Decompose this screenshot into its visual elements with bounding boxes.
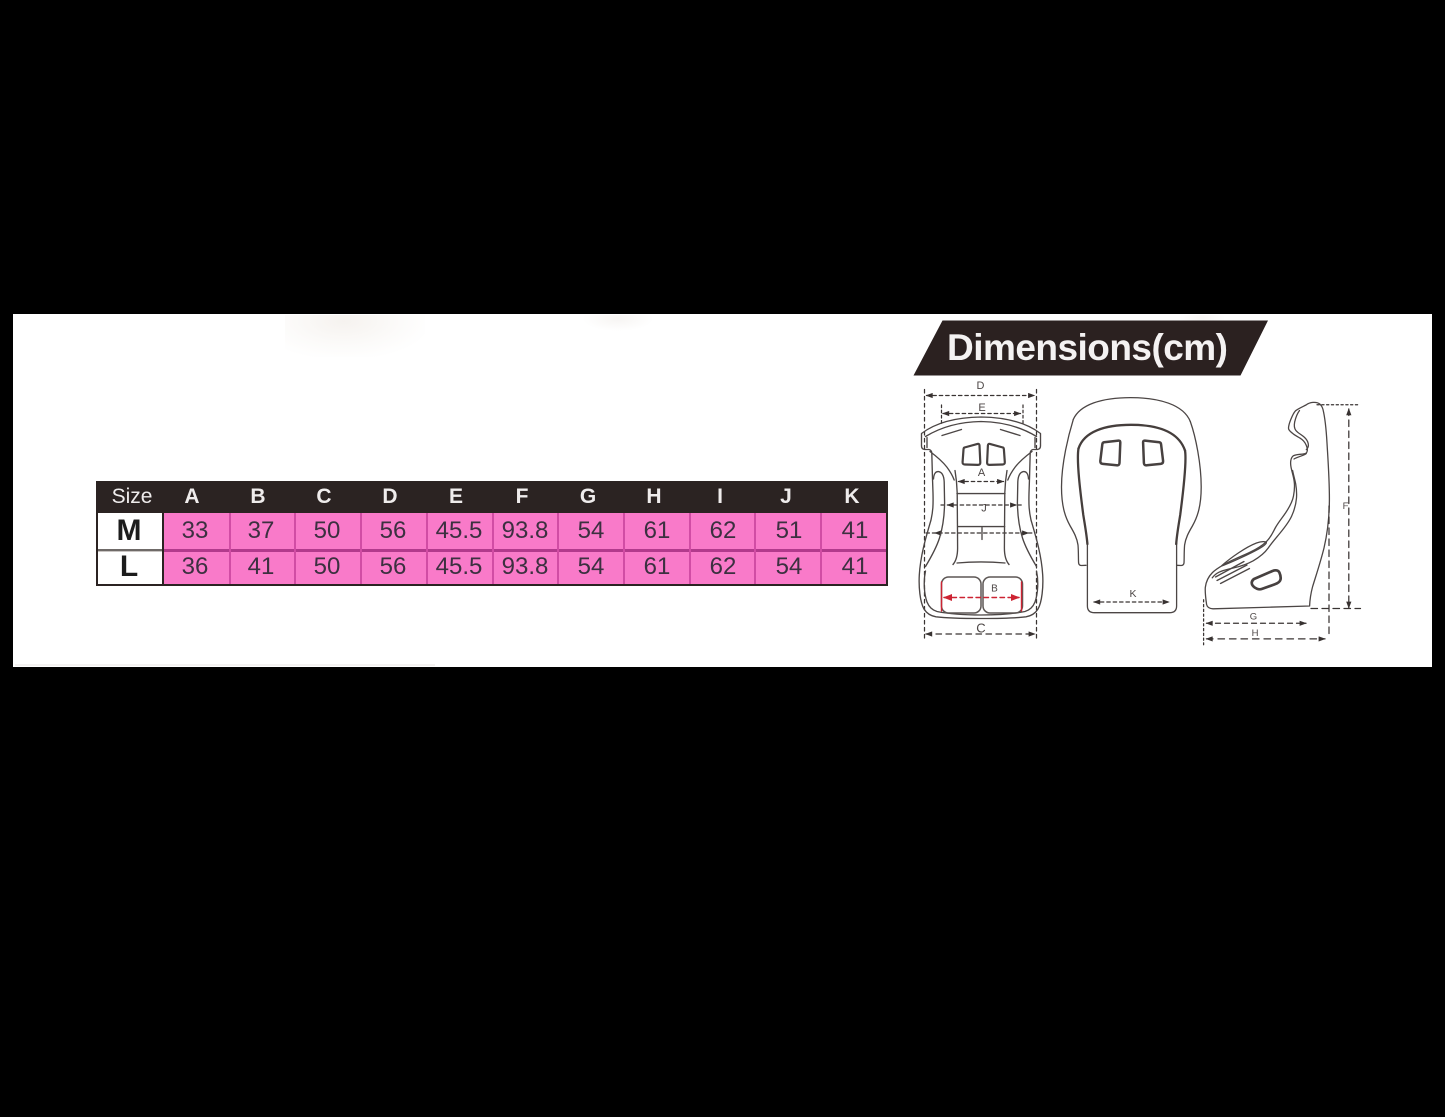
svg-text:G: G bbox=[1250, 611, 1257, 622]
svg-text:Dimensions(cm): Dimensions(cm) bbox=[947, 327, 1228, 368]
svg-text:B: B bbox=[991, 584, 998, 595]
svg-text:H: H bbox=[1252, 628, 1259, 639]
svg-text:J: J bbox=[981, 502, 987, 514]
svg-text:A: A bbox=[978, 467, 986, 479]
svg-text:D: D bbox=[977, 380, 985, 392]
svg-text:E: E bbox=[978, 402, 985, 414]
svg-text:F: F bbox=[1343, 501, 1349, 512]
svg-text:K: K bbox=[1129, 588, 1136, 600]
svg-text:C: C bbox=[976, 621, 985, 636]
